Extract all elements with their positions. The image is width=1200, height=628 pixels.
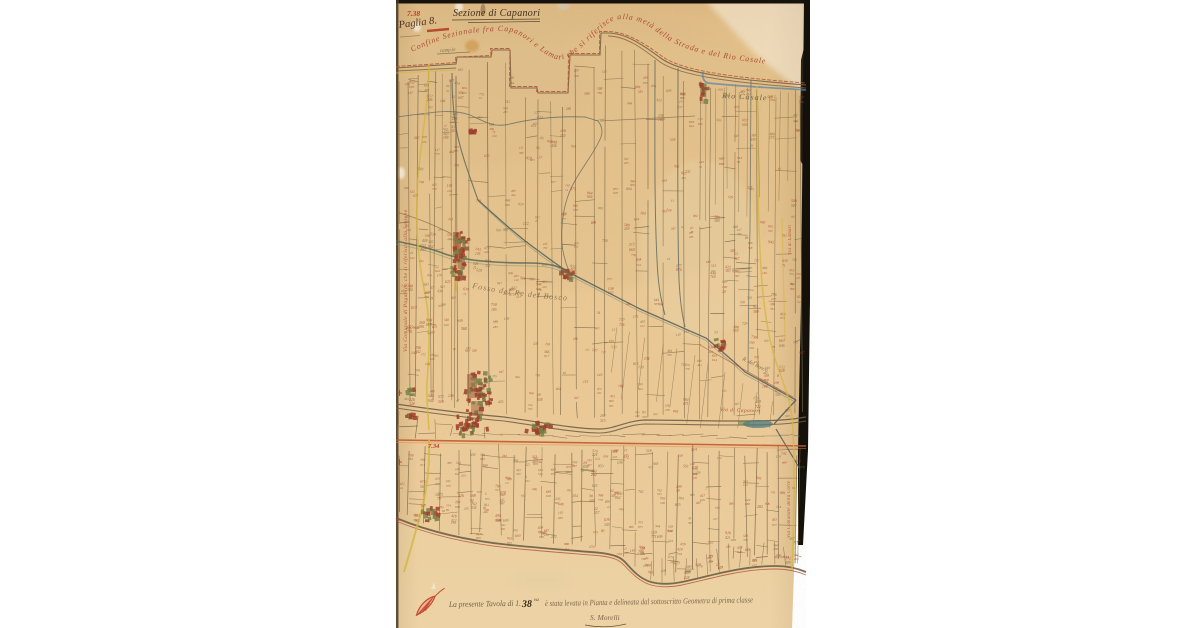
svg-text:379: 379 bbox=[789, 272, 794, 276]
svg-text:381: 381 bbox=[414, 519, 420, 523]
svg-text:326: 326 bbox=[716, 118, 722, 122]
svg-text:112: 112 bbox=[717, 456, 722, 460]
svg-text:143: 143 bbox=[411, 351, 417, 355]
svg-text:318: 318 bbox=[438, 400, 444, 404]
svg-text:372: 372 bbox=[629, 242, 635, 247]
svg-text:875: 875 bbox=[551, 472, 556, 476]
svg-text:565: 565 bbox=[653, 462, 659, 466]
svg-text:Via Comunale di Paganico che s: Via Comunale di Paganico che si riferisc… bbox=[402, 209, 409, 352]
svg-text:186: 186 bbox=[618, 384, 624, 388]
svg-text:666: 666 bbox=[587, 195, 593, 199]
svg-text:329: 329 bbox=[695, 563, 701, 567]
svg-text:785: 785 bbox=[439, 505, 444, 509]
svg-text:505: 505 bbox=[654, 302, 659, 306]
svg-text:652: 652 bbox=[797, 295, 803, 299]
svg-text:910: 910 bbox=[638, 382, 643, 386]
svg-text:870: 870 bbox=[500, 490, 506, 495]
svg-text:938: 938 bbox=[425, 234, 431, 238]
svg-text:536: 536 bbox=[617, 460, 623, 465]
svg-text:888: 888 bbox=[591, 220, 597, 225]
svg-text:488: 488 bbox=[613, 449, 619, 453]
svg-text:928: 928 bbox=[779, 369, 785, 373]
svg-text:180: 180 bbox=[722, 285, 728, 289]
svg-text:511: 511 bbox=[602, 70, 607, 74]
svg-text:806: 806 bbox=[748, 241, 753, 245]
svg-text:776: 776 bbox=[598, 498, 603, 502]
svg-text:760: 760 bbox=[710, 275, 716, 279]
svg-text:401: 401 bbox=[447, 237, 452, 241]
svg-text:603: 603 bbox=[409, 85, 415, 89]
svg-text:335: 335 bbox=[722, 389, 727, 393]
svg-text:344: 344 bbox=[435, 493, 441, 497]
svg-text:254: 254 bbox=[455, 500, 461, 504]
svg-text:256: 256 bbox=[643, 563, 649, 568]
svg-text:565: 565 bbox=[767, 95, 773, 100]
svg-text:660: 660 bbox=[629, 248, 635, 252]
svg-text:789: 789 bbox=[519, 151, 524, 155]
svg-text:450: 450 bbox=[574, 68, 580, 73]
svg-text:442: 442 bbox=[511, 193, 516, 197]
svg-text:648: 648 bbox=[444, 323, 449, 327]
svg-text:968: 968 bbox=[536, 282, 542, 286]
svg-text:205: 205 bbox=[624, 161, 629, 165]
svg-text:141: 141 bbox=[425, 362, 431, 366]
svg-text:192: 192 bbox=[558, 511, 564, 515]
svg-text:902: 902 bbox=[693, 214, 698, 218]
svg-text:338: 338 bbox=[472, 348, 478, 353]
svg-text:664: 664 bbox=[638, 387, 643, 391]
svg-text:421: 421 bbox=[648, 465, 654, 469]
svg-text:609: 609 bbox=[666, 89, 672, 93]
svg-text:137: 137 bbox=[537, 156, 543, 160]
svg-text:31: 31 bbox=[451, 95, 455, 99]
svg-text:886: 886 bbox=[680, 92, 686, 96]
svg-text:690: 690 bbox=[509, 76, 515, 80]
svg-text:794: 794 bbox=[677, 552, 682, 556]
svg-text:474: 474 bbox=[422, 140, 427, 144]
svg-text:237: 237 bbox=[677, 105, 683, 109]
svg-text:235: 235 bbox=[419, 259, 424, 263]
svg-text:568: 568 bbox=[470, 494, 476, 498]
svg-text:771: 771 bbox=[651, 535, 657, 539]
svg-text:696: 696 bbox=[536, 287, 541, 291]
svg-text:559: 559 bbox=[617, 552, 623, 556]
svg-text:387: 387 bbox=[414, 136, 420, 140]
svg-text:782: 782 bbox=[597, 91, 603, 95]
svg-text:226: 226 bbox=[447, 189, 453, 193]
svg-text:404: 404 bbox=[794, 557, 799, 561]
svg-text:65: 65 bbox=[540, 136, 544, 140]
svg-text:292: 292 bbox=[749, 346, 754, 350]
svg-text:770: 770 bbox=[435, 152, 440, 156]
svg-text:271: 271 bbox=[752, 563, 757, 567]
svg-text:875: 875 bbox=[638, 525, 643, 529]
svg-text:7.34: 7.34 bbox=[428, 443, 440, 450]
svg-text:228: 228 bbox=[684, 576, 690, 580]
svg-text:165: 165 bbox=[640, 211, 646, 216]
svg-text:446: 446 bbox=[483, 510, 488, 514]
svg-text:830: 830 bbox=[558, 516, 563, 520]
svg-text:931: 931 bbox=[780, 316, 786, 320]
svg-text:421: 421 bbox=[725, 536, 731, 540]
svg-text:986: 986 bbox=[629, 525, 634, 529]
svg-text:933: 933 bbox=[507, 536, 513, 541]
svg-text:916: 916 bbox=[715, 506, 720, 510]
svg-text:11: 11 bbox=[432, 330, 435, 334]
svg-text:622: 622 bbox=[681, 171, 687, 175]
svg-text:299: 299 bbox=[774, 381, 780, 385]
svg-text:959: 959 bbox=[733, 329, 739, 333]
svg-text:481: 481 bbox=[404, 397, 410, 401]
svg-text:314: 314 bbox=[691, 446, 697, 452]
svg-text:339: 339 bbox=[695, 471, 701, 475]
svg-text:Via di Lamari: Via di Lamari bbox=[788, 224, 793, 255]
svg-text:528: 528 bbox=[670, 138, 676, 142]
svg-text:345: 345 bbox=[775, 393, 781, 397]
svg-text:31: 31 bbox=[796, 129, 800, 133]
svg-text:935: 935 bbox=[465, 348, 471, 353]
svg-text:290: 290 bbox=[624, 551, 629, 555]
svg-text:403: 403 bbox=[503, 228, 509, 232]
svg-text:853: 853 bbox=[598, 464, 604, 468]
svg-text:996: 996 bbox=[674, 164, 680, 169]
svg-text:675: 675 bbox=[683, 402, 689, 406]
svg-text:115: 115 bbox=[583, 380, 589, 384]
svg-text:626: 626 bbox=[484, 154, 490, 158]
svg-text:568: 568 bbox=[461, 327, 467, 331]
svg-text:428: 428 bbox=[677, 547, 683, 552]
svg-text:555: 555 bbox=[793, 340, 798, 345]
svg-text:776: 776 bbox=[631, 253, 636, 257]
svg-text:105: 105 bbox=[740, 300, 746, 304]
svg-text:173: 173 bbox=[769, 136, 775, 140]
svg-text:522: 522 bbox=[456, 461, 462, 465]
svg-text:742: 742 bbox=[505, 99, 511, 104]
svg-text:630: 630 bbox=[463, 287, 469, 291]
svg-text:496: 496 bbox=[762, 266, 768, 270]
svg-text:622: 622 bbox=[435, 269, 441, 273]
svg-text:270: 270 bbox=[589, 545, 595, 549]
svg-text:589: 589 bbox=[799, 100, 804, 104]
svg-text:739: 739 bbox=[619, 317, 625, 322]
svg-text:334: 334 bbox=[708, 345, 714, 350]
svg-text:765: 765 bbox=[792, 258, 798, 262]
svg-text:933: 933 bbox=[754, 355, 759, 359]
svg-text:557: 557 bbox=[594, 511, 600, 515]
svg-text:729: 729 bbox=[742, 322, 748, 326]
svg-text:741: 741 bbox=[636, 263, 641, 267]
svg-text:439: 439 bbox=[680, 542, 686, 546]
svg-text:742: 742 bbox=[781, 451, 787, 456]
svg-text:973: 973 bbox=[485, 497, 490, 501]
svg-text:613: 613 bbox=[411, 305, 417, 310]
svg-text:618: 618 bbox=[546, 494, 551, 498]
svg-text:534: 534 bbox=[471, 506, 477, 510]
svg-text:Via Comunale della Corte: Via Comunale della Corte bbox=[787, 480, 792, 538]
svg-text:793: 793 bbox=[543, 246, 548, 250]
svg-text:444: 444 bbox=[564, 547, 569, 551]
svg-text:399: 399 bbox=[516, 472, 521, 476]
svg-text:821: 821 bbox=[428, 105, 434, 110]
svg-text:128: 128 bbox=[560, 129, 566, 133]
svg-text:833: 833 bbox=[454, 149, 459, 153]
svg-text:249: 249 bbox=[589, 499, 595, 503]
svg-text:896: 896 bbox=[790, 287, 795, 291]
svg-text:995: 995 bbox=[785, 414, 790, 418]
svg-text:679: 679 bbox=[562, 212, 568, 216]
svg-text:620: 620 bbox=[684, 571, 690, 575]
svg-text:974: 974 bbox=[634, 217, 640, 222]
svg-text:942: 942 bbox=[768, 239, 774, 245]
svg-text:661: 661 bbox=[542, 280, 548, 284]
svg-text:466: 466 bbox=[793, 119, 799, 123]
svg-text:171: 171 bbox=[633, 315, 639, 319]
svg-text:155: 155 bbox=[560, 134, 566, 138]
svg-text:998: 998 bbox=[435, 482, 440, 486]
svg-text:160: 160 bbox=[735, 269, 740, 273]
svg-text:829: 829 bbox=[718, 565, 724, 570]
svg-text:958: 958 bbox=[485, 259, 491, 263]
svg-text:38: 38 bbox=[521, 599, 532, 610]
svg-text:853: 853 bbox=[409, 80, 415, 85]
svg-text:713: 713 bbox=[681, 363, 687, 367]
svg-text:630: 630 bbox=[782, 259, 788, 263]
svg-text:269: 269 bbox=[624, 227, 630, 231]
svg-text:375: 375 bbox=[570, 187, 576, 191]
svg-text:972: 972 bbox=[420, 480, 426, 484]
svg-text:263: 263 bbox=[600, 414, 606, 418]
svg-text:86: 86 bbox=[737, 160, 741, 164]
svg-text:611: 611 bbox=[771, 490, 776, 494]
svg-text:367: 367 bbox=[735, 274, 740, 278]
svg-text:422: 422 bbox=[451, 519, 457, 523]
svg-text:54: 54 bbox=[597, 311, 601, 315]
svg-text:259: 259 bbox=[435, 477, 440, 481]
svg-text:804: 804 bbox=[462, 86, 467, 90]
svg-text:335: 335 bbox=[638, 89, 644, 94]
svg-text:638: 638 bbox=[537, 398, 543, 402]
svg-text:202: 202 bbox=[790, 282, 795, 286]
svg-text:362: 362 bbox=[533, 456, 539, 461]
svg-text:474: 474 bbox=[566, 465, 571, 469]
svg-text:985: 985 bbox=[760, 220, 766, 225]
svg-text:825: 825 bbox=[675, 503, 681, 507]
svg-text:614: 614 bbox=[410, 256, 415, 260]
svg-text:382: 382 bbox=[414, 512, 420, 518]
svg-text:376: 376 bbox=[464, 506, 470, 511]
svg-text:19: 19 bbox=[505, 481, 509, 485]
svg-text:957: 957 bbox=[497, 281, 503, 285]
svg-text:199: 199 bbox=[443, 136, 449, 140]
svg-text:480: 480 bbox=[503, 110, 508, 114]
svg-text:817: 817 bbox=[544, 354, 550, 358]
svg-text:699: 699 bbox=[542, 263, 548, 267]
svg-text:596: 596 bbox=[515, 375, 520, 379]
svg-text:878: 878 bbox=[422, 135, 427, 139]
svg-text:653: 653 bbox=[432, 325, 438, 329]
svg-text:690: 690 bbox=[532, 487, 538, 492]
svg-text:961: 961 bbox=[513, 458, 519, 463]
svg-text:24: 24 bbox=[400, 486, 404, 490]
svg-text:824: 824 bbox=[537, 115, 543, 120]
svg-text:286: 286 bbox=[566, 107, 572, 111]
svg-text:122: 122 bbox=[640, 324, 645, 328]
svg-text:700: 700 bbox=[641, 557, 646, 561]
svg-text:316: 316 bbox=[458, 494, 464, 498]
svg-text:911: 911 bbox=[443, 267, 448, 271]
svg-text:122: 122 bbox=[523, 221, 529, 226]
svg-text:149: 149 bbox=[630, 548, 636, 553]
svg-text:551: 551 bbox=[415, 326, 420, 330]
svg-text:939: 939 bbox=[480, 457, 485, 461]
svg-text:518: 518 bbox=[646, 449, 652, 453]
svg-text:94: 94 bbox=[470, 499, 474, 503]
svg-text:926: 926 bbox=[725, 531, 731, 535]
svg-text:79: 79 bbox=[437, 497, 441, 501]
svg-text:524: 524 bbox=[430, 232, 436, 237]
svg-text:978: 978 bbox=[573, 208, 578, 212]
svg-text:328: 328 bbox=[409, 402, 415, 406]
svg-text:117: 117 bbox=[408, 91, 413, 95]
svg-text:112: 112 bbox=[421, 352, 426, 356]
svg-text:339: 339 bbox=[642, 415, 647, 419]
svg-text:877: 877 bbox=[772, 523, 777, 527]
svg-text:564: 564 bbox=[655, 524, 661, 529]
svg-text:181: 181 bbox=[454, 163, 460, 167]
svg-text:680: 680 bbox=[455, 505, 460, 509]
svg-text:311: 311 bbox=[793, 540, 799, 545]
svg-text:285: 285 bbox=[493, 325, 498, 329]
svg-text:255: 255 bbox=[753, 396, 759, 400]
svg-text:529: 529 bbox=[728, 195, 734, 199]
svg-text:303: 303 bbox=[772, 517, 778, 522]
svg-text:738: 738 bbox=[535, 373, 541, 378]
svg-text:854: 854 bbox=[556, 387, 562, 391]
svg-text:620: 620 bbox=[526, 156, 532, 160]
svg-text:607: 607 bbox=[458, 96, 464, 100]
svg-text:227: 227 bbox=[592, 348, 598, 352]
svg-text:345: 345 bbox=[604, 523, 610, 527]
svg-text:238: 238 bbox=[665, 408, 670, 412]
svg-text:906: 906 bbox=[658, 302, 664, 307]
svg-text:39: 39 bbox=[429, 296, 433, 301]
svg-text:55: 55 bbox=[446, 89, 450, 93]
svg-text:170: 170 bbox=[437, 273, 443, 278]
svg-text:830: 830 bbox=[515, 534, 521, 538]
svg-text:839: 839 bbox=[750, 138, 756, 142]
svg-text:778: 778 bbox=[685, 367, 690, 371]
svg-text:533: 533 bbox=[611, 345, 617, 349]
svg-text:245: 245 bbox=[484, 250, 490, 254]
svg-text:245: 245 bbox=[699, 160, 704, 164]
svg-text:49: 49 bbox=[537, 393, 541, 397]
svg-text:304: 304 bbox=[482, 464, 488, 468]
svg-text:236: 236 bbox=[448, 394, 454, 398]
svg-text:379: 379 bbox=[492, 374, 497, 378]
svg-text:661: 661 bbox=[458, 67, 464, 72]
svg-text:800: 800 bbox=[609, 399, 614, 403]
svg-text:808: 808 bbox=[583, 465, 589, 469]
svg-text:883: 883 bbox=[598, 206, 604, 210]
svg-text:308: 308 bbox=[770, 302, 776, 306]
svg-text:784: 784 bbox=[770, 307, 775, 311]
svg-text:967: 967 bbox=[734, 257, 740, 261]
svg-text:53: 53 bbox=[734, 252, 738, 256]
svg-text:84: 84 bbox=[745, 236, 749, 240]
svg-text:204: 204 bbox=[438, 304, 443, 308]
svg-text:301: 301 bbox=[458, 91, 464, 95]
svg-text:294: 294 bbox=[440, 99, 446, 103]
svg-text:603: 603 bbox=[451, 296, 457, 300]
svg-text:749: 749 bbox=[476, 198, 482, 203]
svg-text:614: 614 bbox=[795, 459, 801, 463]
svg-text:838: 838 bbox=[745, 502, 750, 506]
svg-text:784: 784 bbox=[408, 457, 413, 461]
svg-text:820: 820 bbox=[518, 202, 524, 206]
svg-text:804: 804 bbox=[626, 187, 632, 191]
svg-text:739: 739 bbox=[751, 335, 757, 340]
svg-text:443: 443 bbox=[612, 455, 617, 459]
svg-text:467: 467 bbox=[696, 501, 702, 505]
svg-text:801: 801 bbox=[533, 462, 539, 466]
svg-text:469: 469 bbox=[722, 279, 728, 284]
svg-text:960: 960 bbox=[529, 391, 534, 395]
svg-text:817: 817 bbox=[760, 378, 766, 383]
svg-text:727: 727 bbox=[754, 259, 760, 263]
svg-text:674: 674 bbox=[668, 555, 674, 560]
svg-text:706: 706 bbox=[743, 538, 748, 542]
svg-text:610: 610 bbox=[609, 339, 614, 343]
svg-text:353: 353 bbox=[708, 554, 714, 559]
svg-text:936: 936 bbox=[505, 203, 510, 207]
svg-text:697: 697 bbox=[496, 228, 502, 233]
svg-text:401: 401 bbox=[424, 88, 429, 92]
svg-text:71: 71 bbox=[782, 264, 786, 268]
svg-text:229: 229 bbox=[635, 414, 640, 418]
svg-text:679: 679 bbox=[477, 490, 482, 494]
svg-text:600: 600 bbox=[742, 123, 748, 127]
svg-text:906: 906 bbox=[765, 502, 771, 506]
svg-text:499: 499 bbox=[785, 561, 791, 565]
svg-text:552: 552 bbox=[683, 464, 689, 468]
svg-text:342: 342 bbox=[428, 240, 434, 244]
svg-text:375: 375 bbox=[747, 186, 753, 190]
svg-text:16: 16 bbox=[667, 257, 671, 261]
svg-text:273: 273 bbox=[561, 217, 566, 221]
svg-text:750: 750 bbox=[491, 303, 497, 307]
svg-text:416: 416 bbox=[542, 285, 547, 289]
svg-text:95: 95 bbox=[543, 531, 547, 535]
svg-text:875: 875 bbox=[438, 228, 443, 232]
svg-text:663: 663 bbox=[779, 338, 785, 343]
svg-text:509: 509 bbox=[574, 74, 579, 78]
svg-text:572: 572 bbox=[438, 394, 444, 399]
svg-text:324: 324 bbox=[668, 539, 673, 543]
svg-text:507: 507 bbox=[574, 396, 579, 400]
svg-text:52: 52 bbox=[610, 489, 614, 493]
svg-text:180: 180 bbox=[773, 547, 779, 551]
svg-text:390: 390 bbox=[729, 501, 735, 506]
svg-text:849: 849 bbox=[457, 319, 463, 323]
svg-text:203: 203 bbox=[796, 276, 801, 280]
svg-text:691: 691 bbox=[662, 178, 668, 183]
svg-text:677: 677 bbox=[413, 194, 419, 198]
svg-text:224: 224 bbox=[595, 457, 600, 461]
svg-text:867: 867 bbox=[735, 402, 740, 406]
svg-text:748: 748 bbox=[419, 180, 424, 184]
svg-text:23: 23 bbox=[410, 251, 414, 255]
svg-text:901: 901 bbox=[756, 476, 762, 480]
